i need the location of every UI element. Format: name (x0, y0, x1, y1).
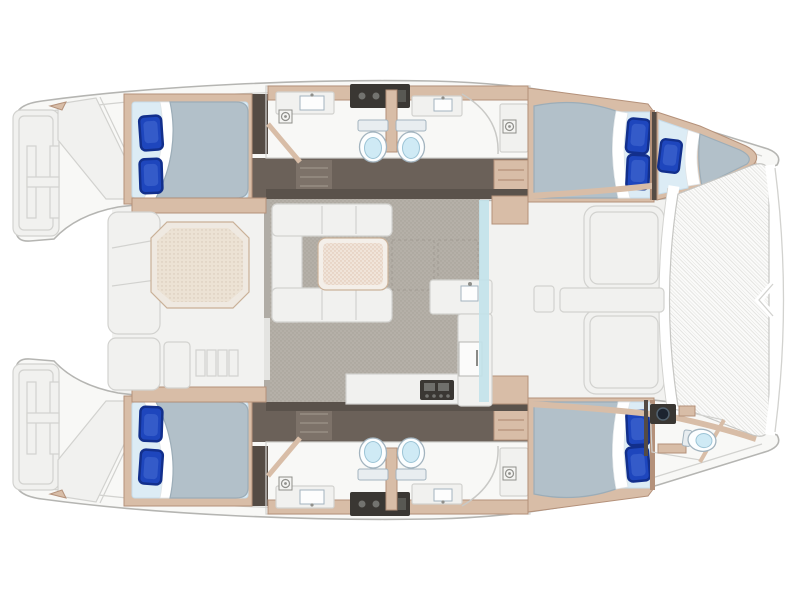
faucet (468, 282, 472, 286)
cabinet (679, 406, 695, 416)
trampoline-mesh (670, 164, 770, 436)
bench-cushion (132, 198, 266, 213)
floor-plan-drawing (0, 0, 800, 600)
forward-window (479, 200, 489, 402)
cabinet (658, 444, 686, 453)
catamaran-floor-plan (0, 0, 800, 600)
bow-section (659, 164, 784, 436)
bow-beam (770, 165, 779, 435)
pillow (658, 139, 683, 174)
sliding-door[interactable] (264, 318, 270, 380)
galley-sink (461, 286, 478, 301)
cockpit-table (151, 222, 249, 308)
foredeck-center (534, 286, 664, 312)
cockpit-seat (164, 342, 190, 388)
vanity-sink (657, 408, 669, 420)
salon (264, 199, 492, 406)
deck-box (534, 286, 554, 312)
forward-door[interactable] (459, 342, 482, 376)
berth-divider (652, 112, 657, 200)
center-walkway (560, 288, 664, 312)
salon-table (318, 238, 388, 290)
